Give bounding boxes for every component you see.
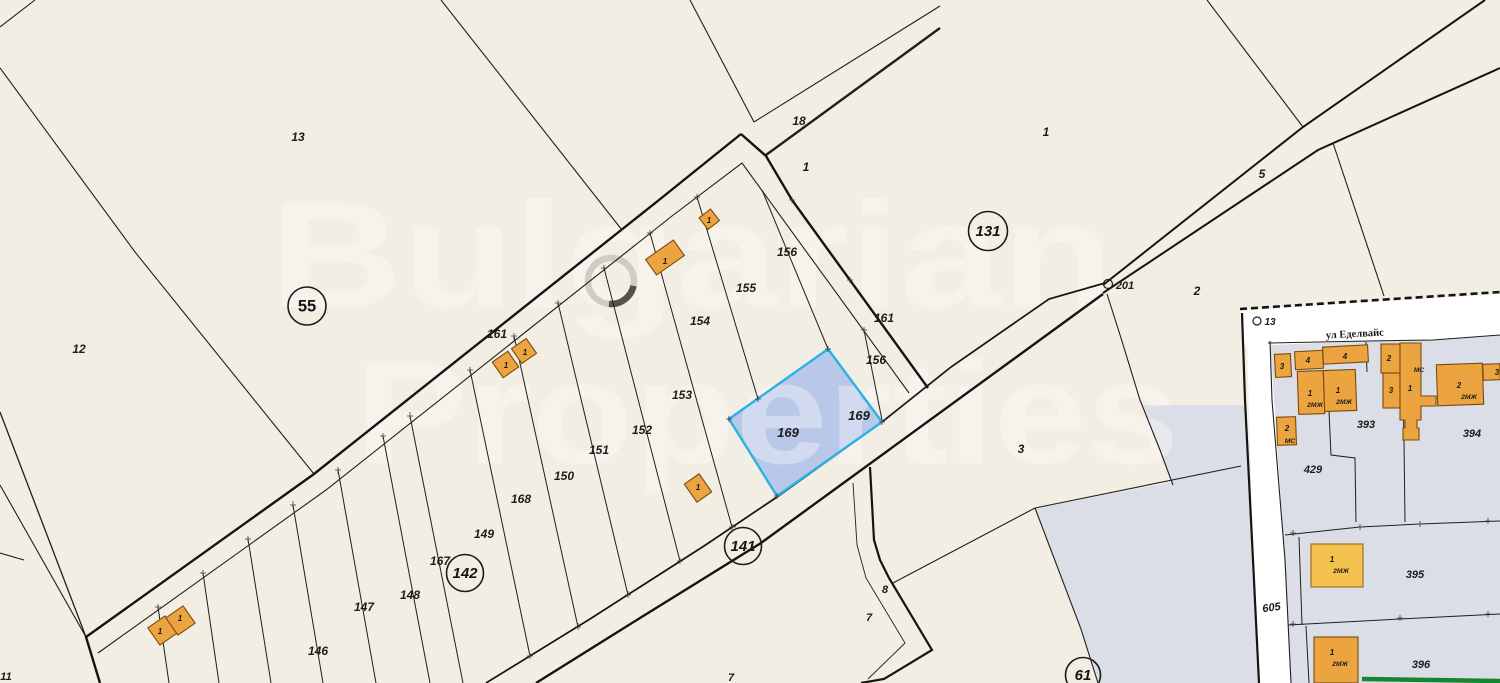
svg-text:2МЖ: 2МЖ xyxy=(1460,394,1477,401)
svg-text:61: 61 xyxy=(1075,667,1092,683)
svg-text:152: 152 xyxy=(632,423,652,437)
svg-text:150: 150 xyxy=(554,469,574,483)
svg-text:1: 1 xyxy=(696,483,701,492)
svg-text:161: 161 xyxy=(874,311,894,325)
svg-text:1: 1 xyxy=(178,614,183,623)
svg-text:3: 3 xyxy=(1389,386,1394,395)
svg-text:169: 169 xyxy=(848,408,870,423)
svg-text:1: 1 xyxy=(1308,389,1313,398)
svg-text:4: 4 xyxy=(1342,352,1348,361)
svg-text:141: 141 xyxy=(730,538,755,555)
svg-text:1: 1 xyxy=(1043,125,1050,139)
svg-text:153: 153 xyxy=(672,388,692,402)
svg-text:142: 142 xyxy=(452,565,478,582)
svg-text:5: 5 xyxy=(1259,167,1266,181)
svg-text:154: 154 xyxy=(690,314,710,328)
svg-text:1: 1 xyxy=(803,160,810,174)
svg-text:1: 1 xyxy=(707,216,712,225)
svg-text:149: 149 xyxy=(474,527,494,541)
svg-text:2: 2 xyxy=(1193,284,1201,298)
svg-text:429: 429 xyxy=(1303,464,1323,476)
svg-text:2: 2 xyxy=(1456,381,1462,390)
svg-text:8: 8 xyxy=(882,584,889,596)
svg-text:1: 1 xyxy=(1336,386,1341,395)
svg-text:201: 201 xyxy=(1115,280,1134,292)
svg-text:151: 151 xyxy=(589,443,609,457)
svg-text:7: 7 xyxy=(866,612,873,624)
svg-text:1: 1 xyxy=(663,257,668,266)
svg-text:1: 1 xyxy=(523,348,528,357)
svg-text:2МЖ: 2МЖ xyxy=(1335,399,1352,406)
svg-text:156: 156 xyxy=(777,245,797,259)
svg-text:МС: МС xyxy=(1414,367,1425,374)
svg-text:2: 2 xyxy=(1284,424,1290,433)
svg-text:7: 7 xyxy=(728,672,735,683)
svg-text:13: 13 xyxy=(1264,317,1276,328)
svg-text:168: 168 xyxy=(511,492,531,506)
svg-text:3: 3 xyxy=(1495,368,1500,377)
svg-text:146: 146 xyxy=(308,644,328,658)
svg-text:1: 1 xyxy=(1330,555,1335,564)
svg-text:393: 393 xyxy=(1357,419,1375,431)
svg-text:2: 2 xyxy=(1386,354,1392,363)
svg-text:131: 131 xyxy=(975,223,1000,240)
svg-text:1: 1 xyxy=(504,361,509,370)
svg-text:167: 167 xyxy=(430,554,451,568)
svg-text:396: 396 xyxy=(1412,659,1431,671)
svg-text:394: 394 xyxy=(1463,428,1481,440)
svg-text:12: 12 xyxy=(72,342,86,356)
svg-text:1: 1 xyxy=(158,627,163,636)
svg-text:13: 13 xyxy=(291,130,305,144)
svg-text:147: 147 xyxy=(354,600,375,614)
svg-text:18: 18 xyxy=(792,114,806,128)
svg-text:395: 395 xyxy=(1406,569,1425,581)
svg-text:11: 11 xyxy=(0,671,11,683)
svg-text:155: 155 xyxy=(736,281,756,295)
svg-text:2МЖ: 2МЖ xyxy=(1306,402,1323,409)
svg-text:1: 1 xyxy=(1408,384,1413,393)
svg-text:1: 1 xyxy=(1330,648,1335,657)
svg-text:МС: МС xyxy=(1285,438,1296,445)
svg-text:2МЖ: 2МЖ xyxy=(1331,661,1348,668)
svg-text:4: 4 xyxy=(1305,356,1311,365)
svg-text:3: 3 xyxy=(1280,362,1285,371)
svg-text:2МЖ: 2МЖ xyxy=(1332,568,1349,575)
svg-text:161: 161 xyxy=(487,327,507,341)
svg-text:169: 169 xyxy=(777,425,799,440)
svg-text:3: 3 xyxy=(1018,442,1025,456)
svg-text:156: 156 xyxy=(866,353,886,367)
svg-text:55: 55 xyxy=(298,298,316,316)
svg-text:148: 148 xyxy=(400,588,420,602)
